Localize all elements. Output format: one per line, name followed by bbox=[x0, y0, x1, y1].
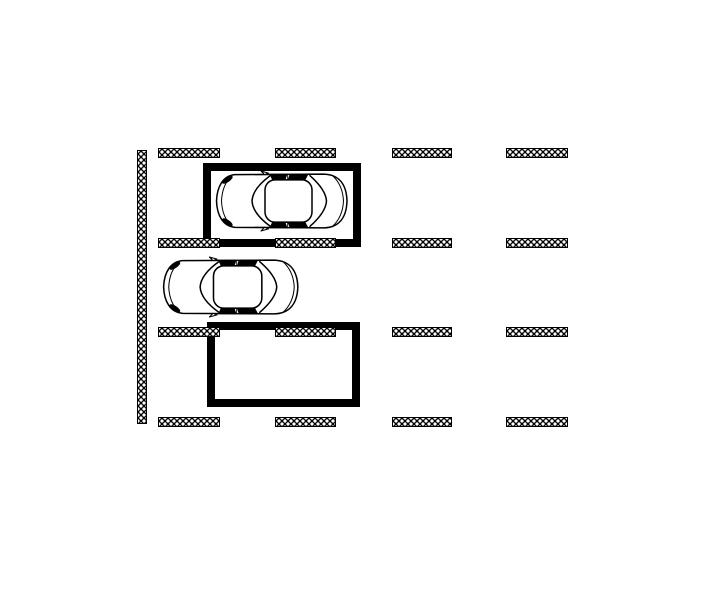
stall-tick-row2-col4 bbox=[506, 238, 568, 248]
stall-tick-row4-col4 bbox=[506, 417, 568, 427]
car-in-aisle bbox=[160, 256, 304, 318]
stall-tick-row4-col3 bbox=[392, 417, 452, 427]
stall-tick-row1-col4 bbox=[506, 148, 568, 158]
stall-tick-row3-col3 bbox=[392, 327, 452, 337]
stall-tick-row3-col4 bbox=[506, 327, 568, 337]
stall-tick-row2-col2 bbox=[275, 238, 336, 248]
wall-hatch-bar bbox=[137, 150, 147, 424]
stall-tick-row2-col3 bbox=[392, 238, 452, 248]
parking-plan-canvas bbox=[0, 0, 720, 591]
stall-tick-row4-col2 bbox=[275, 417, 336, 427]
stall-tick-row4-col1 bbox=[158, 417, 220, 427]
stall-tick-row1-col2 bbox=[275, 148, 336, 158]
car-top-view-icon bbox=[213, 170, 353, 232]
stall-tick-row1-col3 bbox=[392, 148, 452, 158]
stall-tick-row3-col1 bbox=[158, 327, 220, 337]
stall-tick-row2-col1 bbox=[158, 238, 220, 248]
car-parked-in-stall bbox=[213, 170, 353, 232]
stall-tick-row1-col1 bbox=[158, 148, 220, 158]
car-top-view-icon bbox=[160, 256, 304, 318]
stall-tick-row3-col2 bbox=[275, 327, 336, 337]
